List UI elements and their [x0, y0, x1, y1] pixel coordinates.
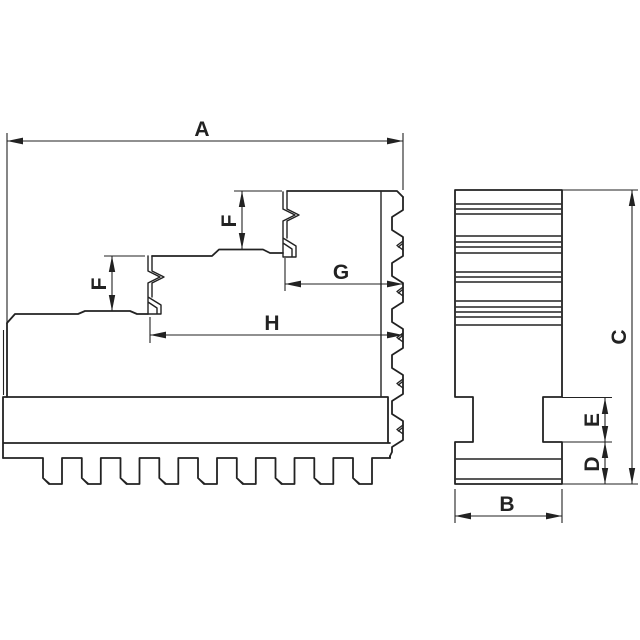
dim-label-b: B: [499, 493, 514, 516]
arrowhead-left: [7, 138, 23, 145]
arrowhead-right: [387, 138, 403, 145]
arrowhead-down: [602, 426, 608, 442]
dimension-f-lower: F: [88, 256, 145, 311]
dimension-f-upper: F: [218, 191, 282, 249]
arrowhead-down: [109, 295, 115, 311]
dim-label-d: D: [581, 456, 604, 471]
middle-step-surface: [152, 250, 283, 257]
bottom-step-surface: [7, 311, 148, 323]
dimension-b: B: [455, 489, 562, 523]
side-view: [3, 191, 403, 484]
serration-groove-lines: [456, 204, 561, 325]
dimension-h: H: [150, 312, 403, 343]
dimension-c: C: [562, 190, 638, 484]
mounting-teeth: [3, 456, 390, 484]
dim-label-h: H: [264, 312, 279, 335]
step-face-upper-serrated: [283, 192, 299, 257]
dim-label-f-upper: F: [218, 214, 241, 227]
arrowhead-up: [109, 256, 115, 272]
step-face-lower-serrated: [148, 256, 164, 314]
dimension-d: D: [581, 442, 608, 484]
arrowhead-up: [602, 442, 608, 458]
dim-label-g: G: [333, 261, 349, 284]
technical-drawing: A F F G H: [0, 0, 640, 640]
arrowhead-down: [629, 468, 635, 484]
guide-flange-lines: [456, 459, 561, 479]
base-strip: [3, 397, 390, 458]
dimension-a-lines: [7, 133, 403, 322]
dim-label-c: C: [608, 329, 631, 344]
arrowhead-down: [239, 233, 245, 249]
dimension-e: E: [562, 398, 612, 443]
top-step-surface: [287, 191, 403, 197]
arrowhead-up: [629, 190, 635, 206]
dimension-a: A: [7, 118, 403, 322]
dim-label-e: E: [581, 413, 604, 427]
arrowhead-left: [285, 281, 301, 288]
dim-label-a: A: [194, 118, 209, 141]
front-view: [455, 190, 562, 484]
arrowhead-up: [602, 398, 608, 414]
front-view-outline: [455, 190, 562, 484]
dim-label-f-lower: F: [88, 277, 111, 290]
dimension-g: G: [285, 258, 403, 291]
serrated-outer-edge: [390, 197, 403, 458]
arrowhead-left: [455, 513, 471, 520]
arrowhead-right: [546, 513, 562, 520]
arrowhead-left: [150, 332, 166, 339]
drawing-canvas: A F F G H: [0, 0, 640, 640]
arrowhead-up: [239, 191, 245, 207]
